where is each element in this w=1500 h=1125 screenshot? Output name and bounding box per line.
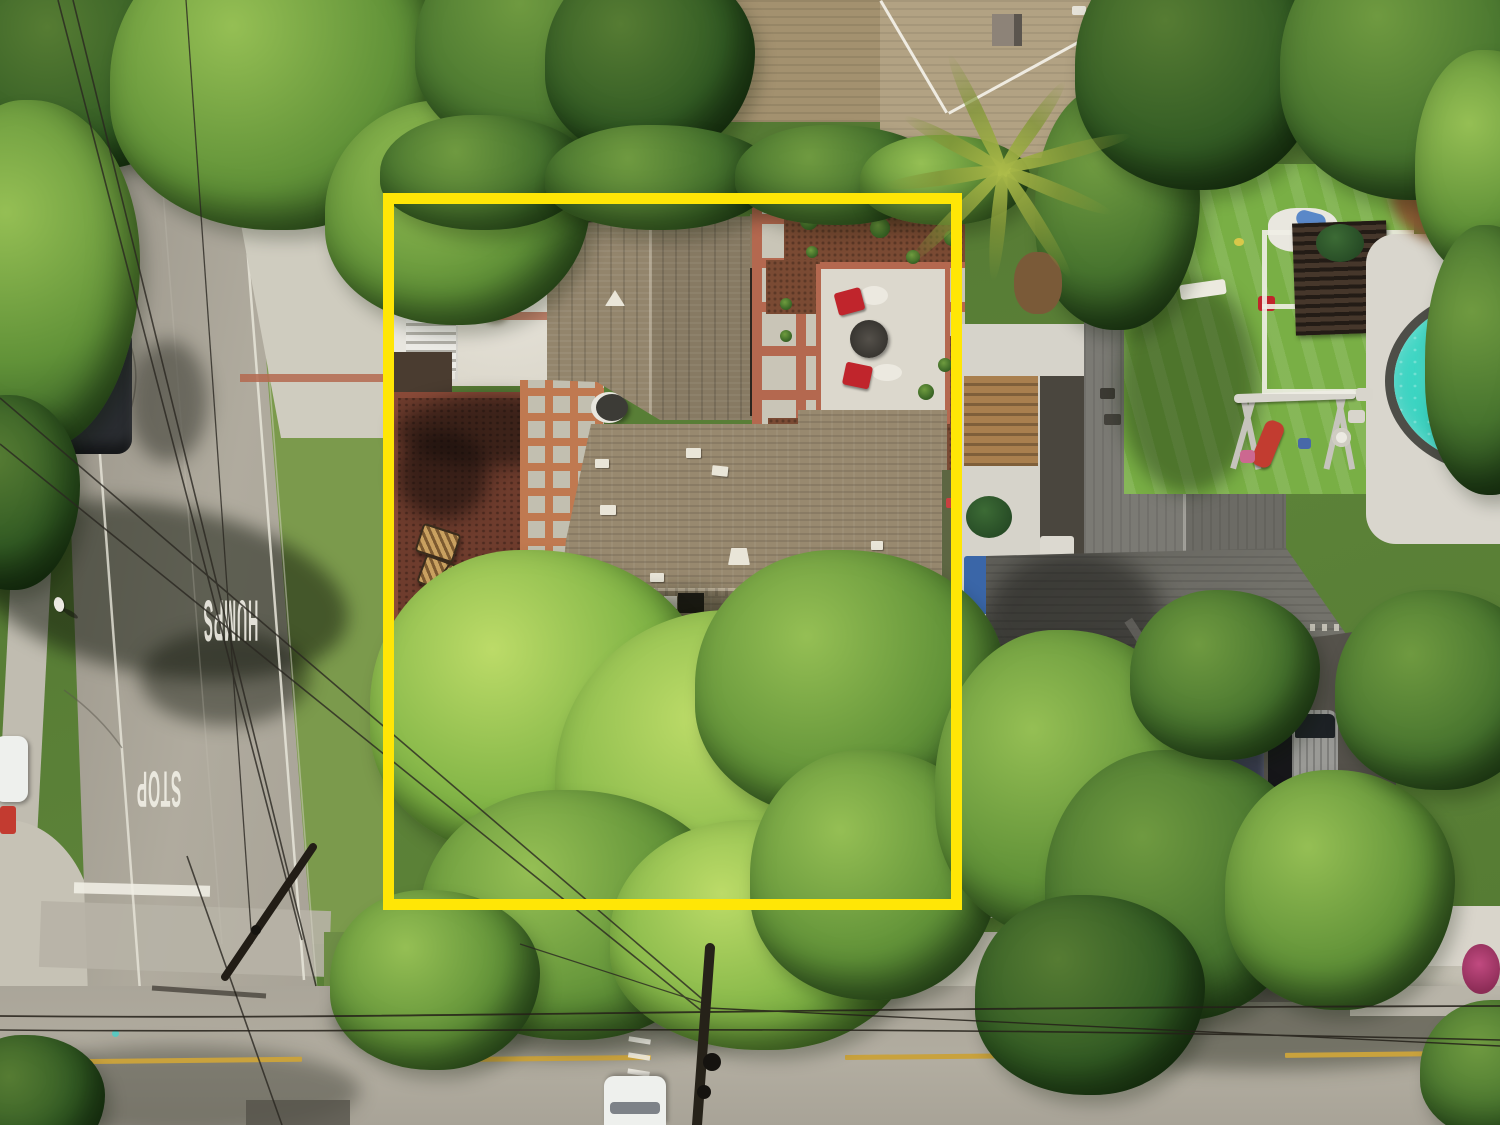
property-boundary-highlight bbox=[383, 193, 962, 910]
crossarm-shadow bbox=[152, 988, 266, 996]
pole-hardware bbox=[251, 925, 261, 935]
aerial-drone-photo: HUMPS STOP bbox=[0, 0, 1500, 1125]
pole-transformer bbox=[697, 1085, 711, 1099]
leaning-utility-pole bbox=[225, 847, 313, 977]
pole-transformer bbox=[703, 1053, 721, 1071]
